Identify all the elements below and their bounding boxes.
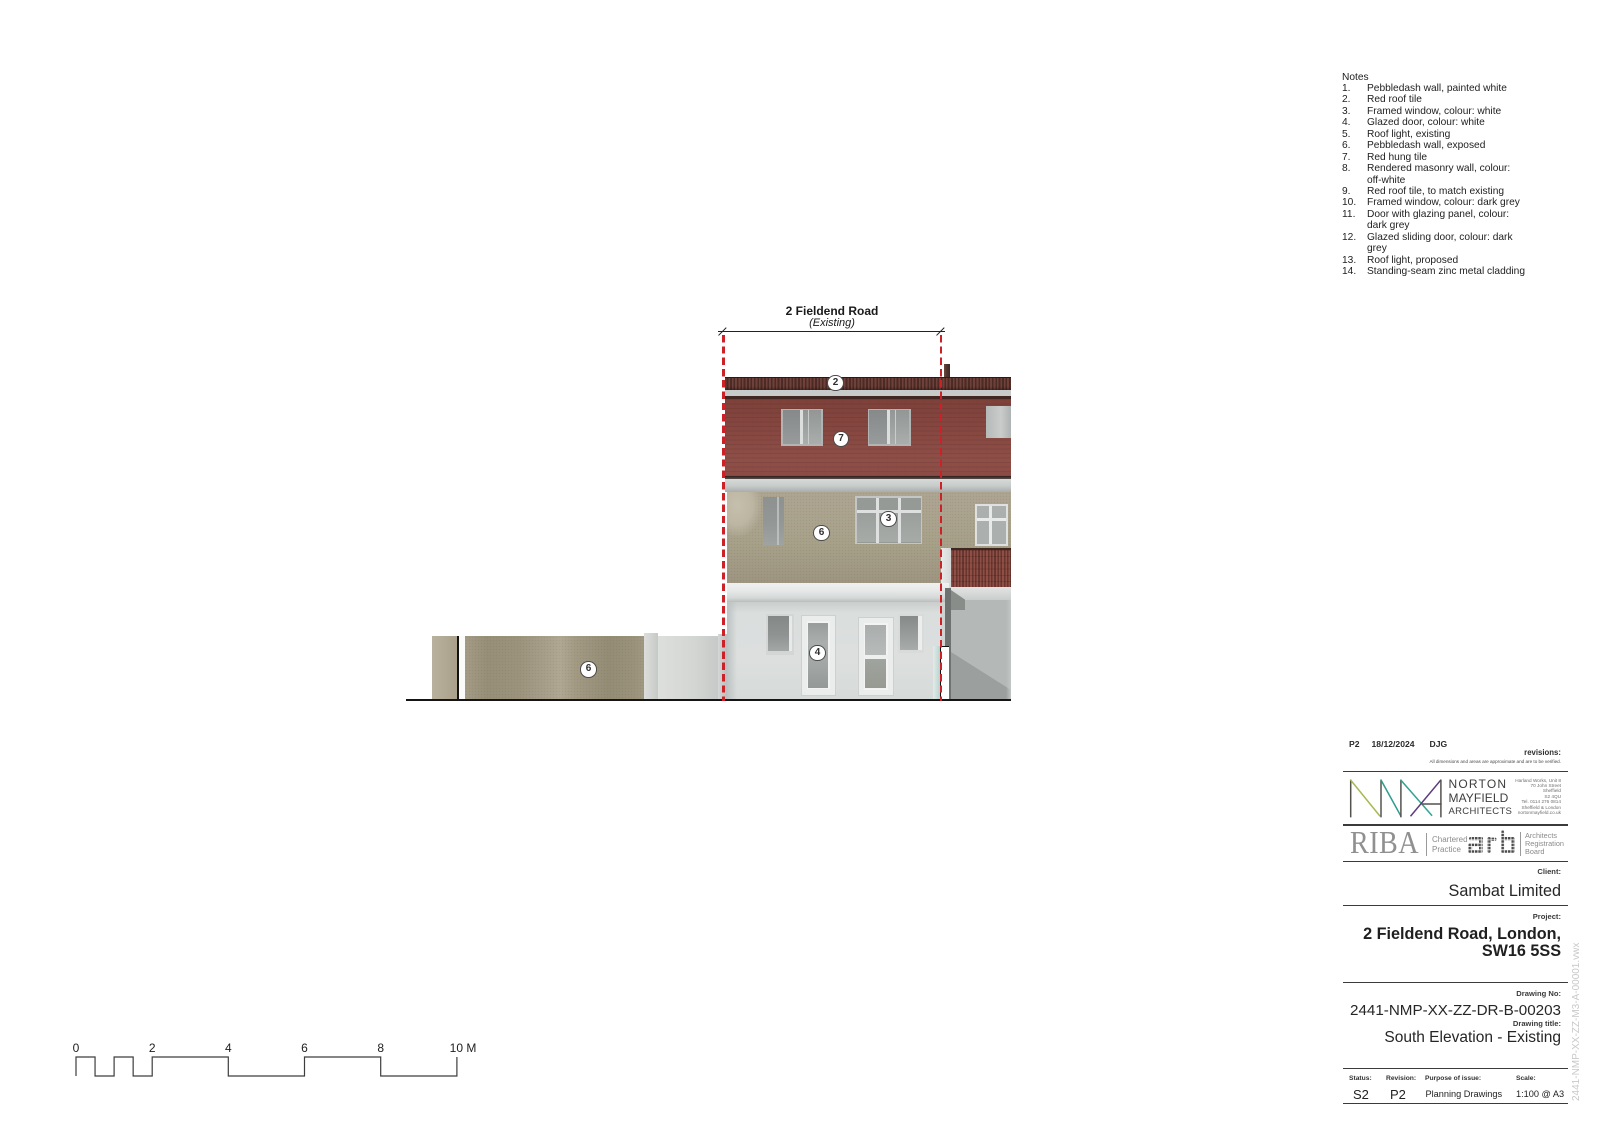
svg-text:2: 2	[149, 1041, 156, 1055]
svg-text:8: 8	[377, 1041, 384, 1055]
svg-text:4: 4	[225, 1041, 232, 1055]
svg-text:10 M: 10 M	[450, 1041, 477, 1055]
svg-text:6: 6	[301, 1041, 308, 1055]
svg-text:0: 0	[73, 1041, 80, 1055]
